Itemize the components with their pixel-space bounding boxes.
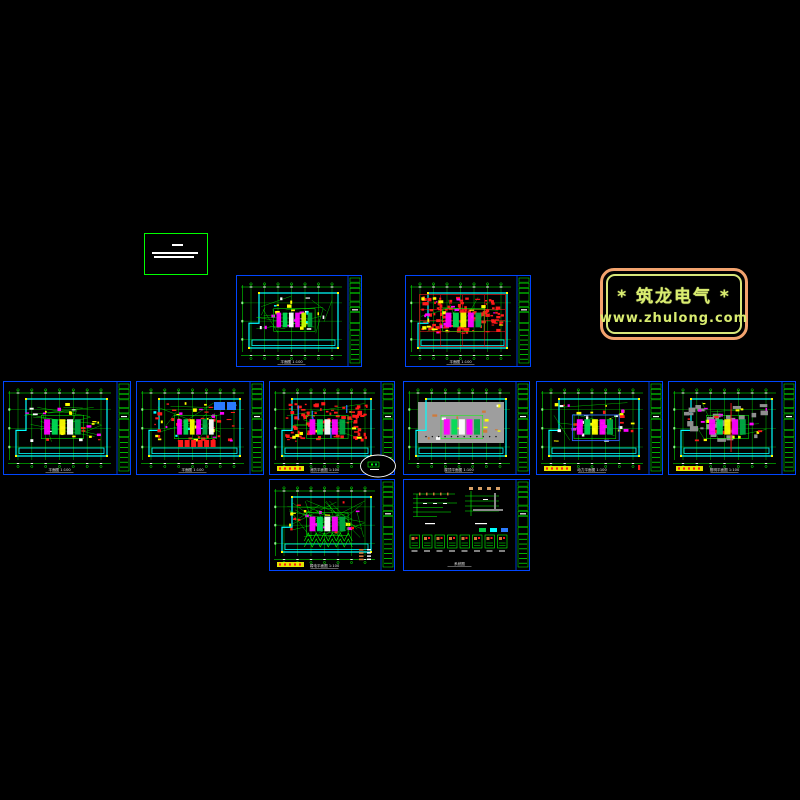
zhulong-watermark: * 筑龙电气 * www.zhulong.com (600, 268, 748, 340)
svg-text:平面图 1:100: 平面图 1:100 (449, 359, 472, 364)
plan-graphics (274, 389, 375, 471)
sheet-graphics-plan-weak: 弱电平面图 1:100 (269, 479, 395, 571)
svg-text:消防平面图 1:100: 消防平面图 1:100 (310, 467, 340, 472)
svg-text:弱电平面图 1:100: 弱电平面图 1:100 (310, 563, 340, 568)
plan-graphics (408, 389, 510, 468)
plan-graphics (673, 389, 776, 471)
note-text-line (154, 256, 194, 258)
sheet-graphics-plan-fire: 消防平面图 1:100 (269, 381, 395, 475)
drawing-sheet-plan-power[interactable]: 动力平面图 1:100 (536, 381, 663, 475)
plan-graphics (274, 487, 375, 567)
note-text-line (172, 244, 183, 246)
svg-text:动力平面图 1:100: 动力平面图 1:100 (577, 467, 607, 472)
diagram-graphics (410, 487, 508, 552)
svg-text:平面图 1:100: 平面图 1:100 (48, 467, 71, 472)
plan-graphics (541, 389, 643, 471)
plan-graphics (410, 283, 511, 360)
note-box (144, 233, 208, 275)
plan-graphics (8, 389, 111, 468)
note-text-line (152, 252, 198, 254)
cad-model-space[interactable]: * 筑龙电气 * www.zhulong.com 平面图 1:100平面图 1:… (0, 0, 800, 800)
drawing-sheet-plan-fire[interactable]: 消防平面图 1:100 (269, 381, 395, 475)
sheet-graphics-plan-light: 照明平面图 1:100 (668, 381, 796, 475)
drawing-sheet-system-diagram[interactable]: 系统图 (403, 479, 530, 571)
plan-graphics (241, 283, 342, 360)
drawing-sheet-plan-light[interactable]: 照明平面图 1:100 (668, 381, 796, 475)
drawing-sheet-plan-roof[interactable]: 屋顶平面图 1:100 (403, 381, 530, 475)
watermark-title: * 筑龙电气 * (617, 282, 731, 307)
sheet-graphics-plan-1f-b: 平面图 1:100 (405, 275, 531, 367)
sheet-graphics-system-diagram: 系统图 (403, 479, 530, 571)
watermark-url: www.zhulong.com (600, 311, 748, 326)
sheet-graphics-plan-1f-a: 平面图 1:100 (236, 275, 362, 367)
drawing-sheet-plan-1f-b[interactable]: 平面图 1:100 (405, 275, 531, 367)
svg-text:系统图: 系统图 (454, 561, 465, 566)
drawing-sheet-plan-2f-a[interactable]: 平面图 1:100 (3, 381, 131, 475)
sheet-graphics-plan-2f-b: 平面图 1:100 (136, 381, 264, 475)
svg-text:屋顶平面图 1:100: 屋顶平面图 1:100 (444, 467, 474, 472)
detail-bubble (361, 455, 396, 477)
drawing-sheet-plan-1f-a[interactable]: 平面图 1:100 (236, 275, 362, 367)
drawing-sheet-plan-weak[interactable]: 弱电平面图 1:100 (269, 479, 395, 571)
sheet-graphics-plan-roof: 屋顶平面图 1:100 (403, 381, 530, 475)
svg-text:平面图 1:100: 平面图 1:100 (280, 359, 303, 364)
plan-graphics (141, 389, 244, 468)
svg-text:照明平面图 1:100: 照明平面图 1:100 (710, 467, 740, 472)
svg-text:平面图 1:100: 平面图 1:100 (181, 467, 204, 472)
sheet-graphics-plan-2f-a: 平面图 1:100 (3, 381, 131, 475)
drawing-sheet-plan-2f-b[interactable]: 平面图 1:100 (136, 381, 264, 475)
sheet-graphics-plan-power: 动力平面图 1:100 (536, 381, 663, 475)
